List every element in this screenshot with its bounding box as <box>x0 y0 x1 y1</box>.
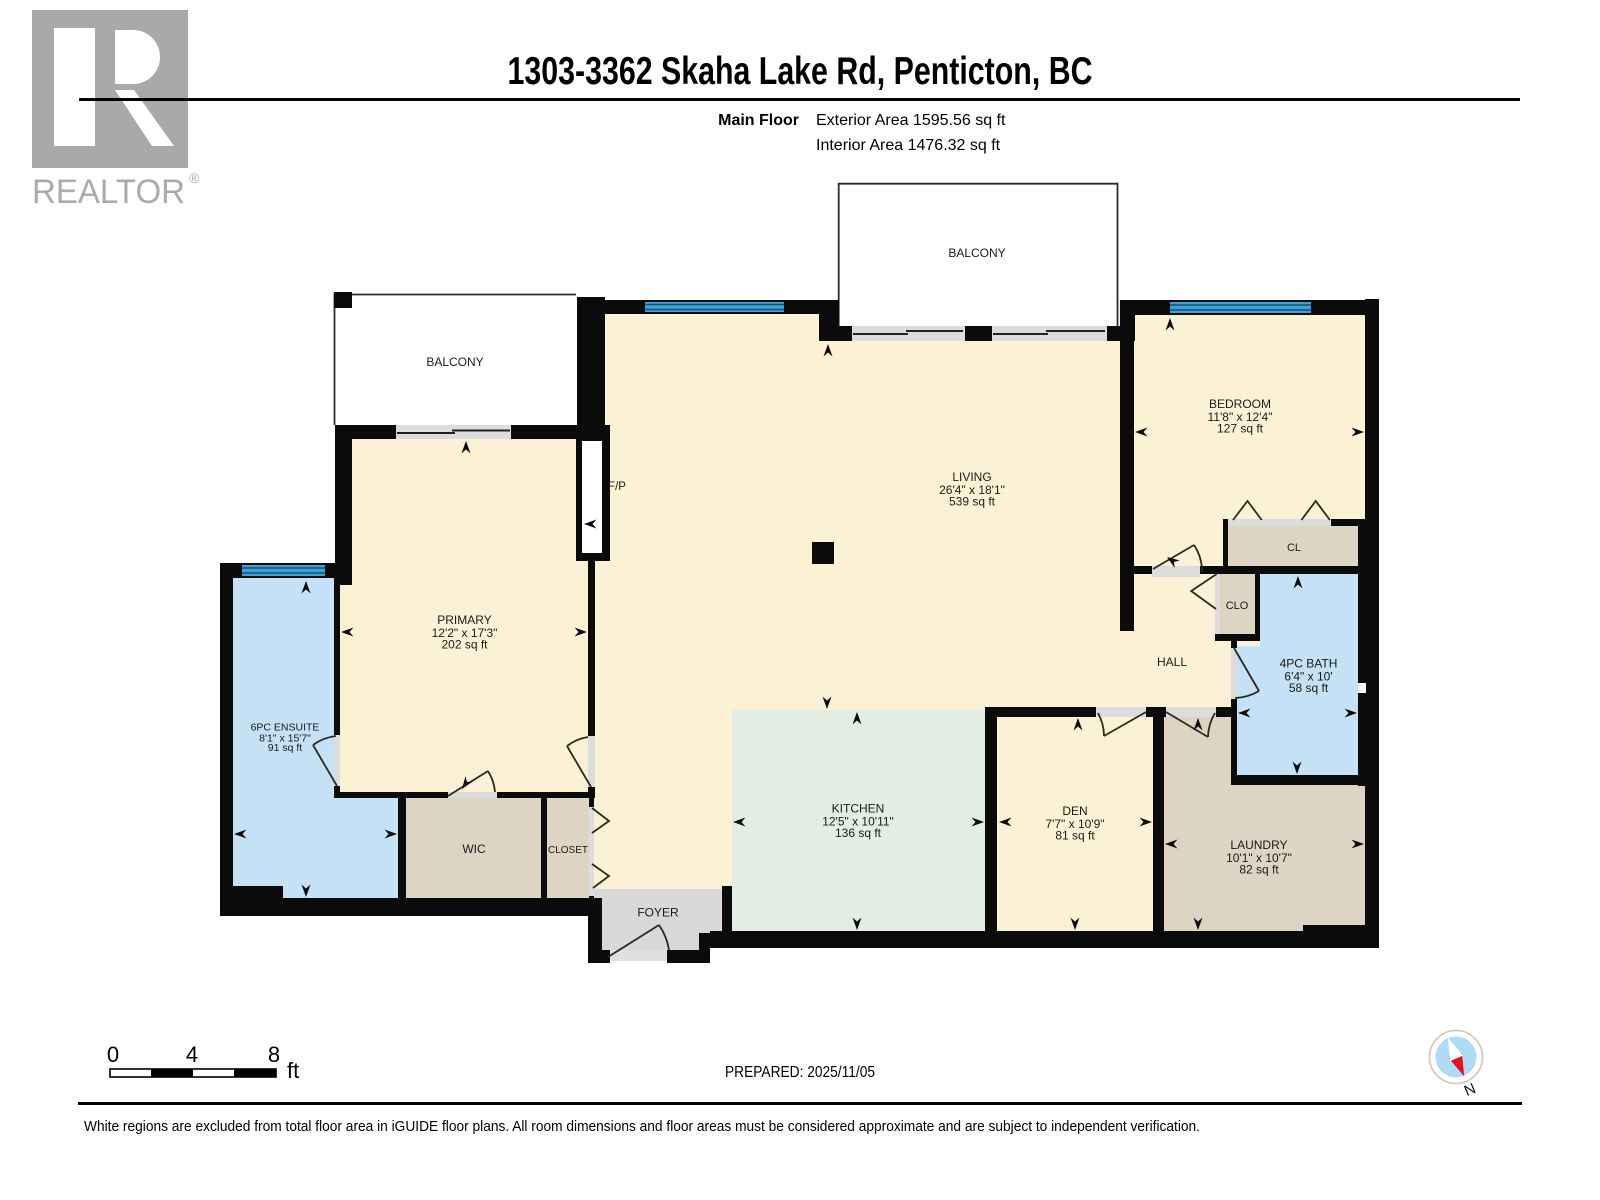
svg-text:CLO: CLO <box>1226 600 1249 612</box>
svg-text:KITCHEN: KITCHEN <box>832 802 885 816</box>
svg-text:DEN: DEN <box>1062 804 1087 818</box>
svg-text:8: 8 <box>268 1042 280 1067</box>
svg-text:PRIMARY: PRIMARY <box>437 613 491 627</box>
svg-text:LAUNDRY: LAUNDRY <box>1230 838 1287 852</box>
svg-text:BALCONY: BALCONY <box>948 246 1005 260</box>
svg-text:F/P: F/P <box>608 481 626 493</box>
svg-text:4: 4 <box>186 1042 198 1067</box>
svg-text:58 sq ft: 58 sq ft <box>1289 681 1329 695</box>
svg-text:0: 0 <box>107 1042 119 1067</box>
svg-text:136 sq ft: 136 sq ft <box>835 826 882 840</box>
svg-text:BALCONY: BALCONY <box>426 355 483 369</box>
svg-text:82 sq ft: 82 sq ft <box>1239 863 1279 877</box>
svg-text:Exterior Area 1595.56 sq ft: Exterior Area 1595.56 sq ft <box>816 112 1006 129</box>
svg-text:CLOSET: CLOSET <box>548 845 588 856</box>
svg-text:81 sq ft: 81 sq ft <box>1055 829 1095 843</box>
svg-text:FOYER: FOYER <box>637 906 679 920</box>
svg-text:1303-3362 Skaha Lake Rd, Penti: 1303-3362 Skaha Lake Rd, Penticton, BC <box>508 50 1093 93</box>
svg-text:®: ® <box>189 170 200 186</box>
svg-text:WIC: WIC <box>462 842 486 856</box>
svg-text:REALTOR: REALTOR <box>32 173 185 211</box>
svg-text:127 sq ft: 127 sq ft <box>1217 422 1264 436</box>
svg-text:202 sq ft: 202 sq ft <box>441 638 488 652</box>
svg-text:91 sq ft: 91 sq ft <box>268 742 303 754</box>
svg-text:ft: ft <box>287 1058 299 1083</box>
svg-text:BEDROOM: BEDROOM <box>1209 397 1271 411</box>
svg-text:Main Floor: Main Floor <box>718 112 799 129</box>
svg-text:LIVING: LIVING <box>952 470 991 484</box>
svg-text:PREPARED: 2025/11/05: PREPARED: 2025/11/05 <box>725 1064 875 1081</box>
svg-text:539 sq ft: 539 sq ft <box>949 495 996 509</box>
svg-text:Interior Area 1476.32 sq ft: Interior Area 1476.32 sq ft <box>816 137 1001 154</box>
svg-text:CL: CL <box>1287 542 1301 554</box>
svg-text:4PC BATH: 4PC BATH <box>1280 657 1338 671</box>
svg-text:White regions are excluded fro: White regions are excluded from total fl… <box>84 1118 1200 1135</box>
svg-text:HALL: HALL <box>1157 655 1187 669</box>
